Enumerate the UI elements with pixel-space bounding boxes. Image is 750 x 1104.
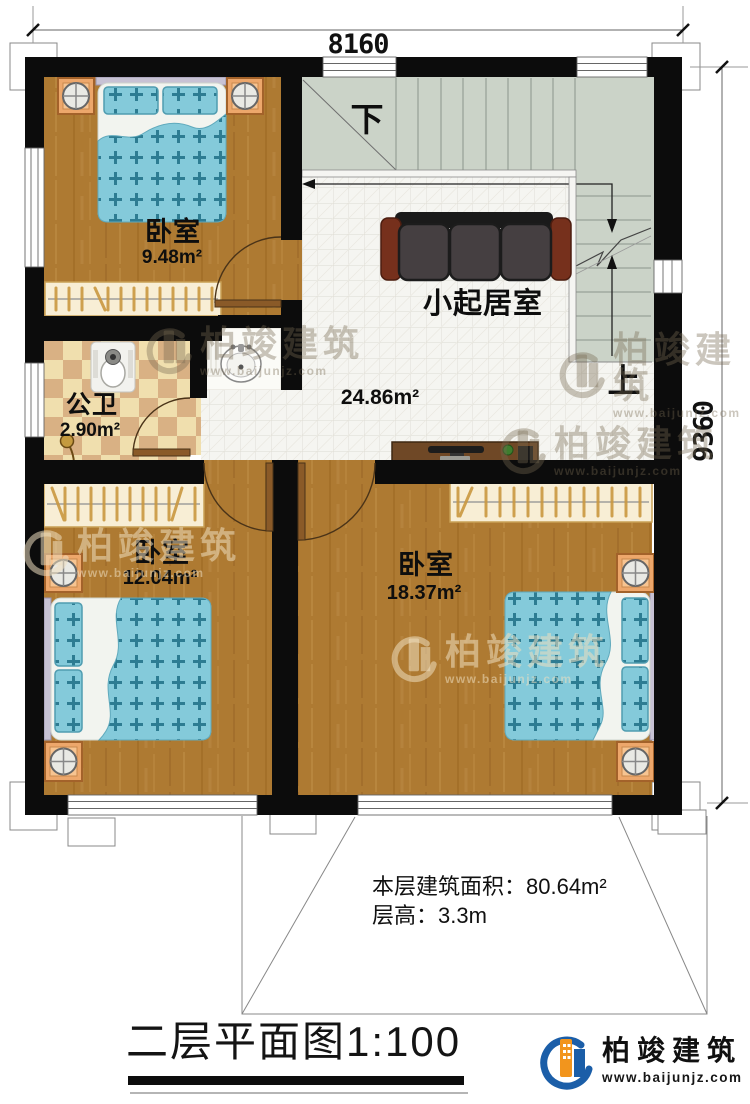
- bedroom-top-name: 卧室: [145, 219, 201, 246]
- desk: [392, 442, 538, 462]
- window-left-1: [25, 148, 44, 267]
- wall-bedroom-divider: [272, 460, 298, 795]
- desk-plant: [503, 445, 513, 455]
- bedroom-left-area: 12.04m²: [123, 568, 198, 588]
- bathroom-area: 2.90m²: [60, 421, 120, 440]
- bedroom-left-name: 卧室: [134, 540, 190, 567]
- bed-right: [505, 592, 655, 740]
- title-underline-thick: [128, 1076, 464, 1085]
- bedroom-top-door-threshold: [281, 240, 302, 300]
- brand-logo-icon: [536, 1036, 594, 1092]
- window-right-1: [654, 260, 682, 293]
- wall-bedroom-top-right-b: [281, 300, 302, 390]
- drawing-title-scale: 1:100: [346, 1018, 461, 1065]
- brand-url: www.baijunjz.com: [602, 1070, 743, 1085]
- stair-down-label: 下: [351, 103, 384, 136]
- bedroom-right-name: 卧室: [398, 552, 454, 579]
- living-area: 24.86m²: [341, 387, 419, 408]
- wall-right: [654, 57, 682, 815]
- hallway-floor: [201, 390, 302, 463]
- wall-middle-left: [44, 460, 204, 484]
- living-name: 小起居室: [423, 290, 543, 319]
- bedroom-top-area: 9.48m²: [142, 248, 202, 267]
- brand-logo: 柏竣建筑 www.baijunjz.com: [536, 1036, 743, 1092]
- squat-toilet: [91, 342, 135, 392]
- bed-left: [44, 598, 211, 740]
- wall-niche-top: [218, 315, 302, 328]
- stair-up-label: 上: [608, 364, 641, 397]
- drawing-title-text: 二层平面图: [126, 1018, 346, 1065]
- wall-middle-right: [375, 460, 654, 484]
- window-top-2: [577, 57, 647, 77]
- dimension-right: 9360: [691, 401, 718, 462]
- window-left-2: [25, 363, 44, 437]
- drawing-title: 二层平面图1:100: [126, 1008, 461, 1069]
- bedroom-left-door-threshold: [204, 460, 272, 484]
- bed-top: [96, 77, 226, 222]
- floor-height-note: 层高：3.3m: [372, 898, 487, 930]
- wall-bedroom-top-right-a: [281, 77, 302, 240]
- sofa: [381, 212, 571, 280]
- bedroom-right-area: 18.37m²: [387, 583, 462, 603]
- dimension-top: 8160: [327, 31, 388, 58]
- floor-plan-drawing: [0, 0, 750, 1104]
- window-top-1: [323, 57, 396, 77]
- wall-bathroom-right: [190, 341, 207, 398]
- bathroom-name: 公卫: [66, 393, 118, 418]
- floor-area-note: 本层建筑面积：80.64m²: [372, 869, 607, 901]
- window-bottom-2: [358, 795, 612, 815]
- window-bottom-1: [68, 795, 257, 815]
- wall-bathroom-top: [44, 316, 222, 341]
- title-underline-thin: [130, 1092, 468, 1094]
- floor-plan-page: 8160 9360 下 上 卧室 9.48m² 小起居室 24.86m² 公卫 …: [0, 0, 750, 1104]
- bedroom-right-door-threshold: [298, 460, 375, 484]
- brand-name: 柏竣建筑: [602, 1036, 743, 1067]
